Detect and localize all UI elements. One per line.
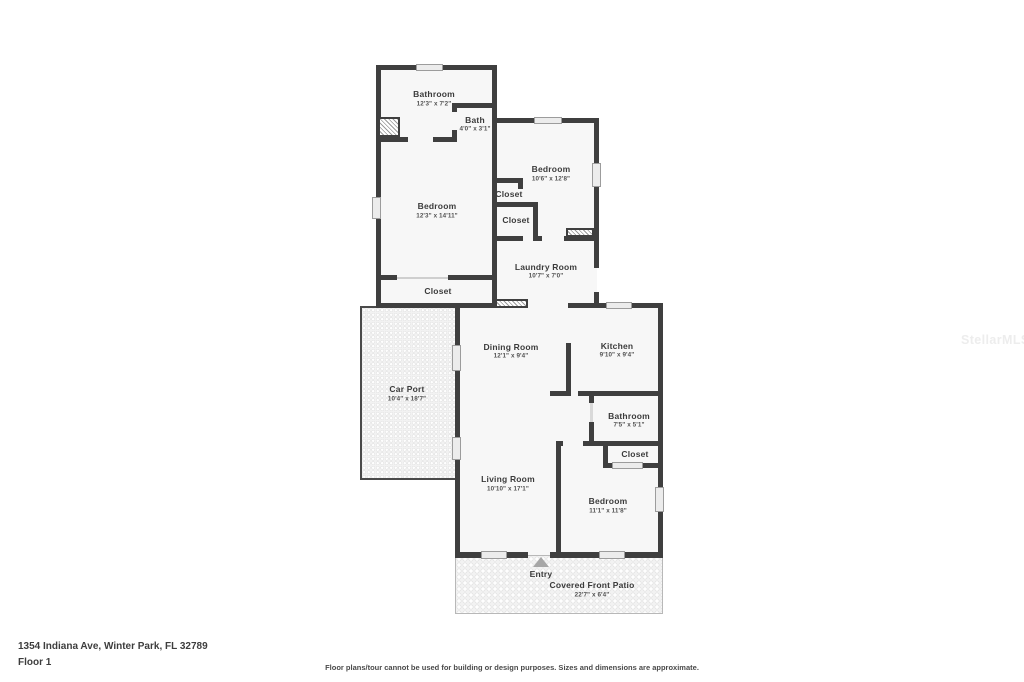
window: [372, 197, 381, 219]
closet-sliding-door: [612, 462, 643, 469]
disclaimer-text: Floor plans/tour cannot be used for buil…: [0, 663, 1024, 672]
wall-segment: [658, 308, 663, 558]
hatched-fixture: [566, 228, 594, 237]
wall-segment: [550, 552, 601, 558]
wall-segment: [492, 202, 538, 207]
wall-segment: [452, 103, 457, 112]
window: [599, 551, 625, 559]
room-dims-bedroom-main: 11'1" x 11'8": [589, 508, 627, 515]
room-label-closet-2: Closet: [502, 215, 529, 225]
room-dims-bedroom-upper-left: 12'3" x 14'11": [416, 213, 458, 220]
room-label-closet-main: Closet: [621, 449, 648, 459]
room-label-kitchen: Kitchen: [601, 341, 634, 351]
window: [452, 345, 461, 371]
window: [592, 163, 601, 187]
watermark: StellarMLS: [961, 333, 1024, 347]
room-label-bedroom-main: Bedroom: [589, 496, 628, 506]
room-label-bedroom-upper-right: Bedroom: [532, 164, 571, 174]
closet-opening-track: [397, 277, 448, 279]
door-slab: [590, 403, 593, 422]
room-dims-laundry: 10'7" x 7'0": [529, 273, 564, 280]
wall-segment: [594, 118, 599, 268]
wall-segment: [376, 303, 497, 308]
wall-segment: [452, 103, 497, 108]
wall-segment: [505, 552, 528, 558]
window: [655, 487, 664, 512]
wall-segment: [455, 552, 483, 558]
floor-plan-page: Bathroom 12'3" x 7'2" Bath 4'0" x 3'1" B…: [0, 0, 1024, 682]
wall-segment: [376, 65, 381, 308]
entry-arrow-icon: [533, 557, 549, 567]
room-dims-bedroom-upper-right: 10'6" x 12'8": [532, 176, 570, 183]
room-label-carport: Car Port: [389, 384, 424, 394]
room-label-closet-upper-left: Closet: [424, 286, 451, 296]
wall-segment: [589, 422, 594, 441]
room-dims-bath: 4'0" x 3'1": [459, 126, 490, 133]
room-label-entry: Entry: [530, 569, 553, 579]
hatched-fixture: [378, 117, 400, 137]
room-dims-dining: 12'1" x 9'4": [494, 353, 529, 360]
room-label-patio: Covered Front Patio: [549, 580, 634, 590]
wall-segment: [568, 303, 606, 308]
room-dims-carport: 10'4" x 18'7": [388, 396, 426, 403]
window: [452, 437, 461, 460]
wall-segment: [623, 552, 663, 558]
window: [481, 551, 507, 559]
window: [606, 302, 632, 309]
wall-segment: [556, 441, 561, 552]
room-dims-living: 10'10" x 17'1": [487, 486, 529, 493]
window: [534, 117, 562, 124]
room-dims-bathroom-upper: 12'3" x 7'2": [417, 101, 452, 108]
room-label-bathroom-upper: Bathroom: [413, 89, 455, 99]
wall-segment: [492, 65, 497, 308]
wall-segment: [533, 236, 542, 241]
room-label-dining: Dining Room: [483, 342, 538, 352]
wall-segment: [376, 275, 397, 280]
room-label-bedroom-upper-left: Bedroom: [418, 201, 457, 211]
hatched-fixture: [495, 299, 528, 308]
room-label-living: Living Room: [481, 474, 535, 484]
wall-segment: [589, 396, 594, 403]
room-dims-patio: 22'7" x 6'4": [575, 592, 610, 599]
window: [416, 64, 443, 71]
wall-segment: [533, 207, 538, 236]
room-dims-bathroom-main: 7'5" x 5'1": [613, 422, 644, 429]
wall-segment: [550, 391, 569, 396]
wall-segment: [448, 275, 497, 280]
wall-segment: [566, 343, 571, 396]
wall-segment: [452, 130, 457, 142]
room-label-laundry: Laundry Room: [515, 262, 577, 272]
wall-segment: [376, 137, 408, 142]
wall-segment: [492, 236, 523, 241]
wall-segment: [583, 441, 663, 446]
room-label-bathroom-main: Bathroom: [608, 411, 650, 421]
room-label-bath: Bath: [465, 115, 485, 125]
property-address: 1354 Indiana Ave, Winter Park, FL 32789: [18, 641, 208, 652]
room-label-closet-1: Closet: [495, 189, 522, 199]
room-dims-kitchen: 9'10" x 9'4": [600, 352, 635, 359]
